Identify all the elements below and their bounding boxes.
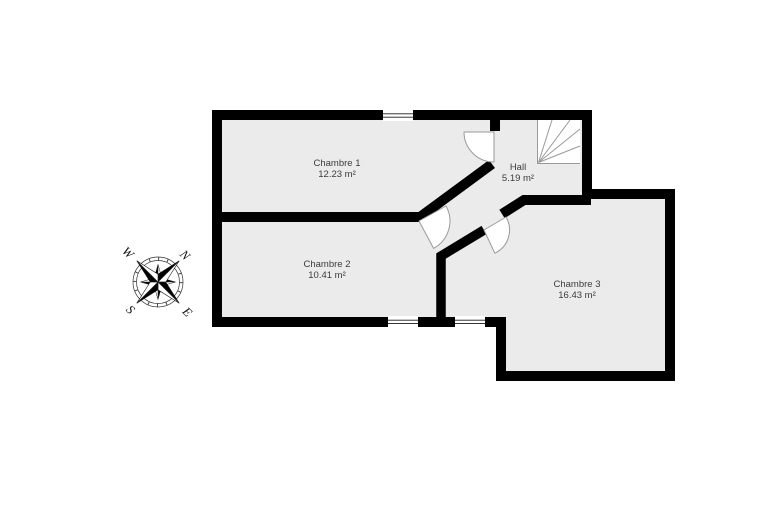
floor-area (212, 110, 675, 381)
compass-letter-east: E (179, 304, 195, 320)
floor-plan: Chambre 1 12.23 m² Hall 5.19 m² Chambre … (0, 0, 768, 512)
compass-letter-south: S (123, 302, 138, 317)
room-area-chambre3: 16.43 m² (558, 290, 596, 301)
room-label-chambre3: Chambre 3 (554, 279, 601, 290)
window-top (383, 109, 413, 121)
room-area-hall: 5.19 m² (502, 173, 534, 184)
staircase (537, 120, 580, 164)
compass-rose-icon: N E S W (92, 217, 222, 347)
window-bottom-left (388, 316, 418, 328)
room-label-chambre2: Chambre 2 (304, 259, 351, 270)
room-area-chambre1: 12.23 m² (318, 169, 356, 180)
window-bottom-right (455, 316, 485, 328)
room-label-hall: Hall (510, 162, 526, 173)
compass-letter-west: W (119, 244, 137, 262)
room-area-chambre2: 10.41 m² (308, 270, 346, 281)
floor-plan-page: Chambre 1 12.23 m² Hall 5.19 m² Chambre … (0, 0, 768, 512)
room-label-chambre1: Chambre 1 (314, 158, 361, 169)
